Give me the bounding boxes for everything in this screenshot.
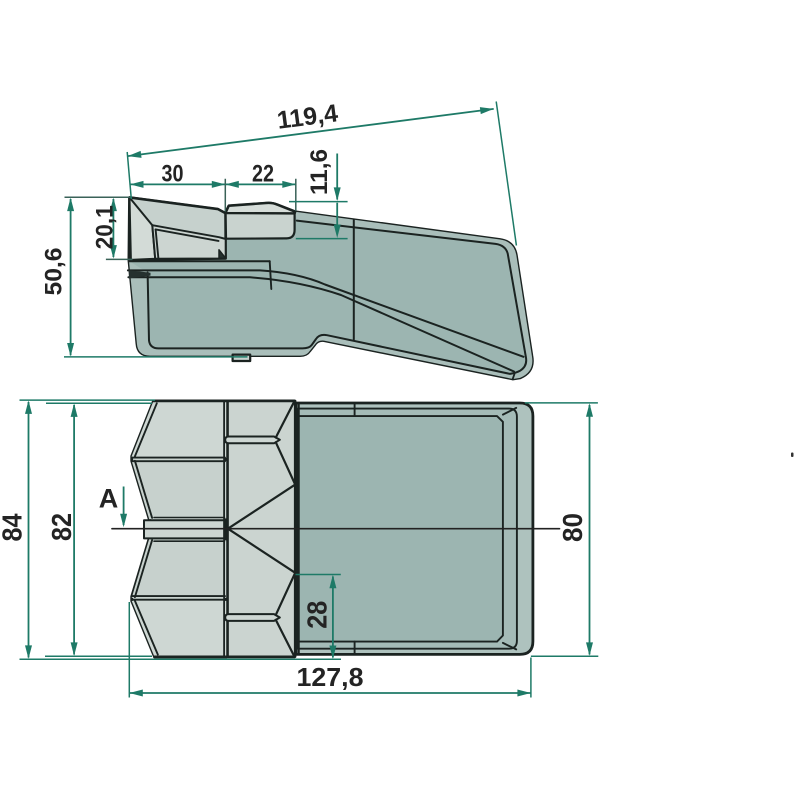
svg-text:22: 22 [252, 161, 274, 188]
svg-text:80: 80 [557, 513, 588, 542]
svg-text:82: 82 [46, 513, 77, 541]
svg-text:84: 84 [0, 513, 28, 541]
svg-text:A: A [99, 484, 119, 514]
svg-text:20,1: 20,1 [92, 205, 119, 249]
svg-text:11,6: 11,6 [306, 149, 333, 195]
svg-text:127,8: 127,8 [297, 662, 364, 692]
svg-text:50,6: 50,6 [41, 248, 68, 296]
svg-text:28: 28 [302, 601, 333, 629]
svg-text:30: 30 [162, 161, 184, 188]
